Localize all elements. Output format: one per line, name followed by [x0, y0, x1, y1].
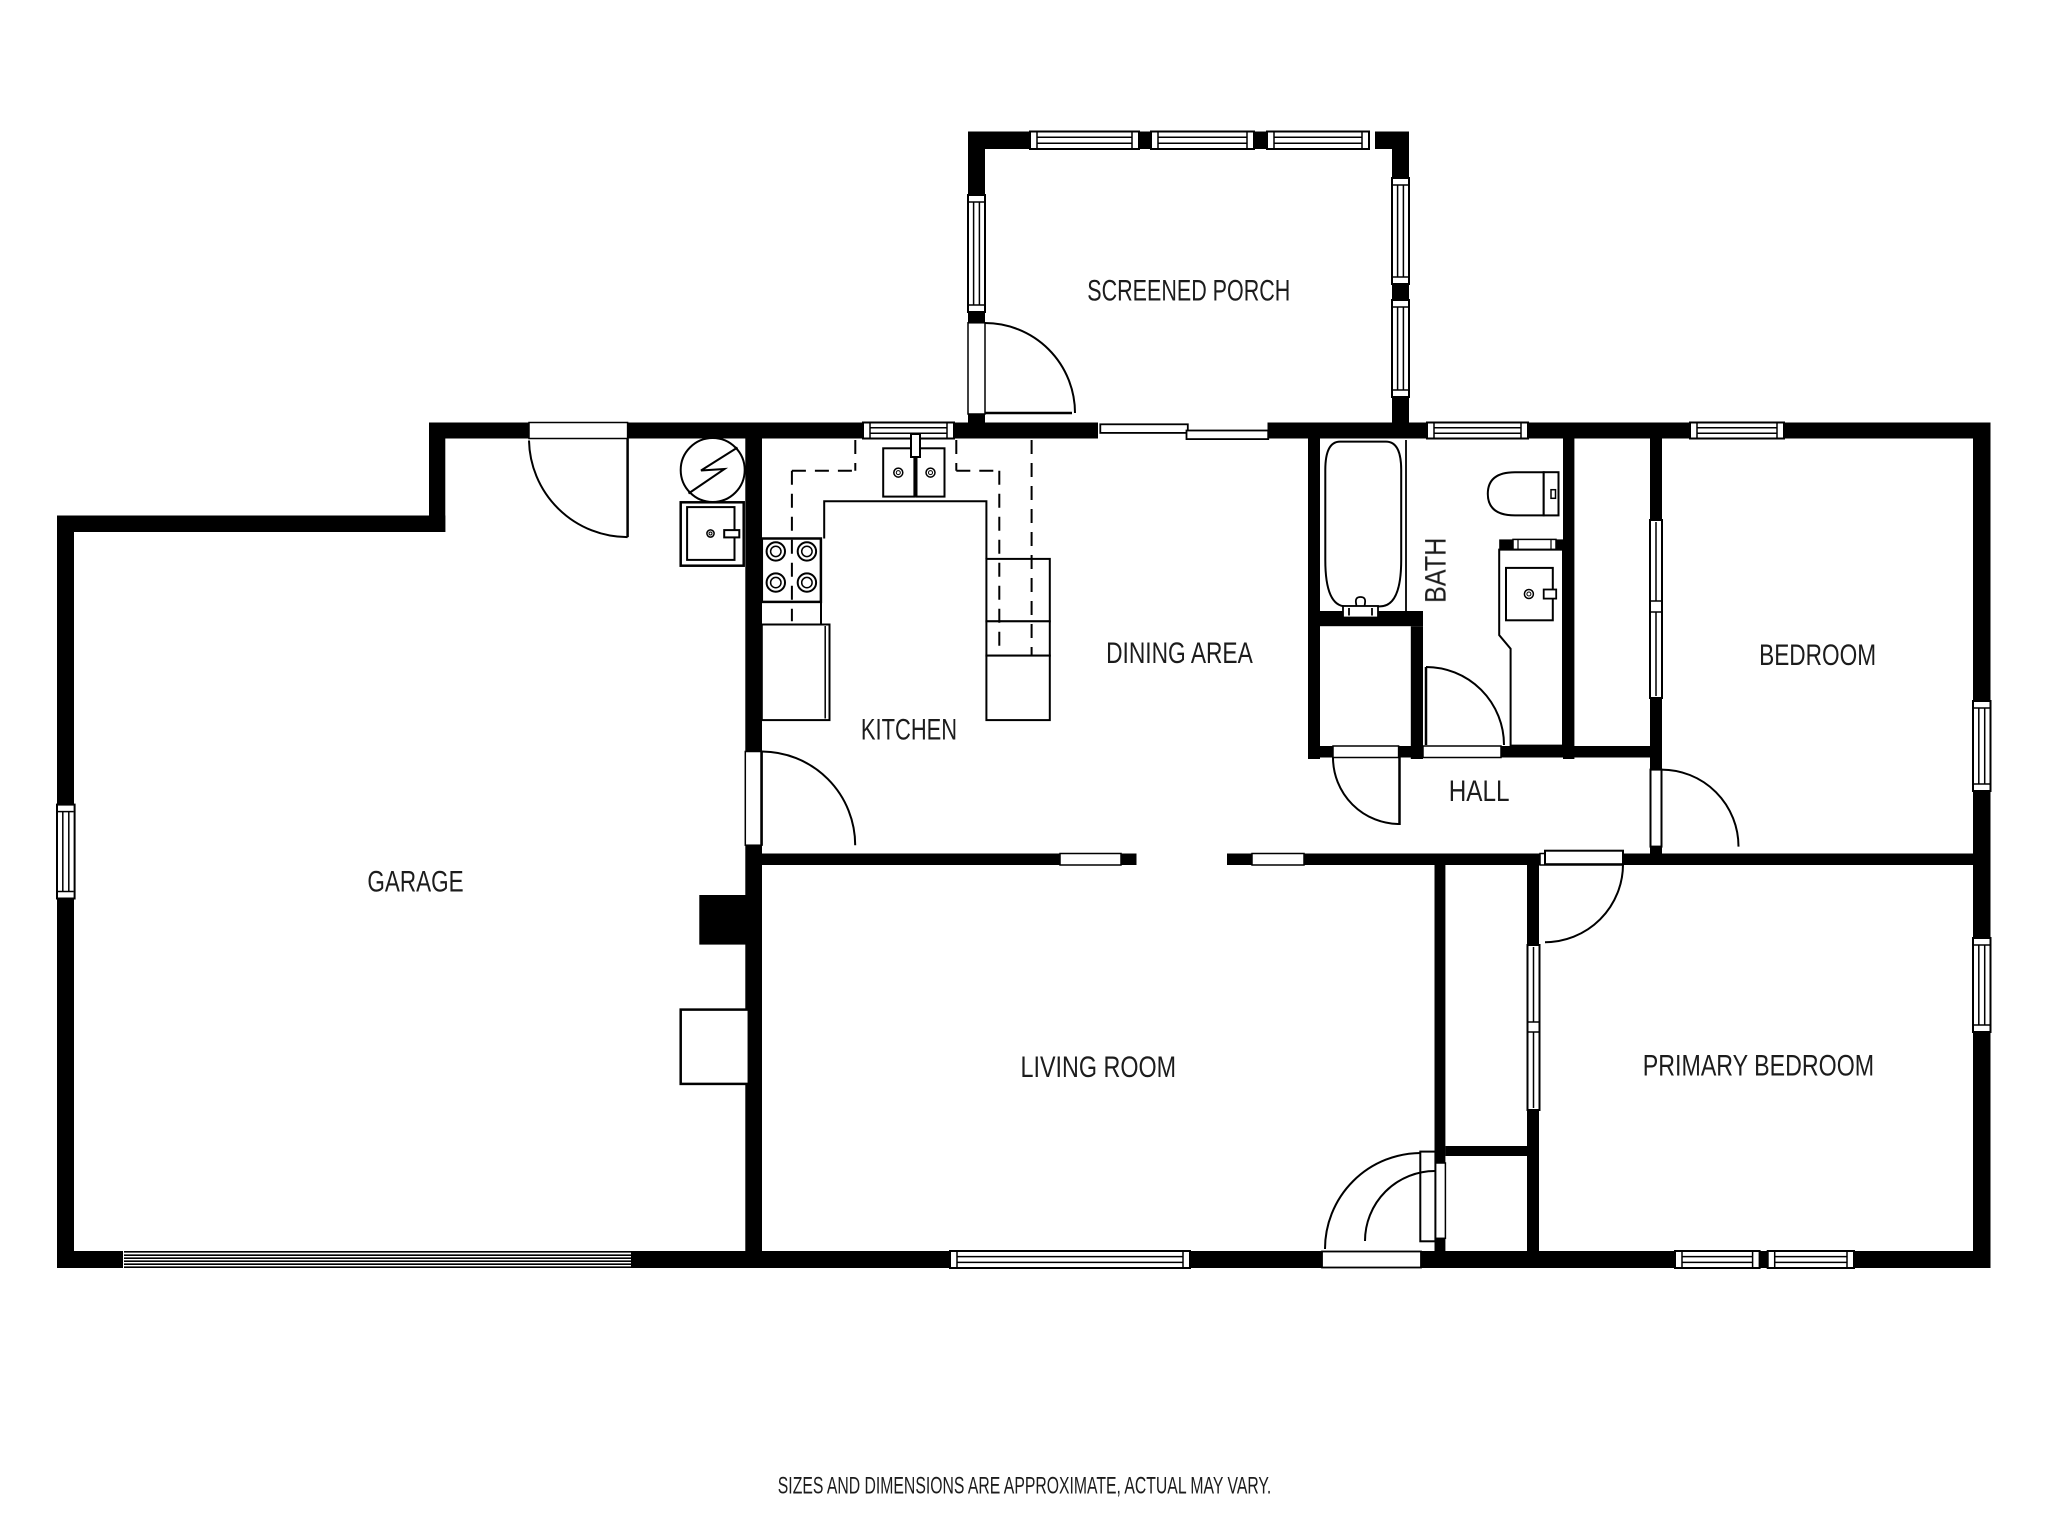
svg-text:SCREENED PORCH: SCREENED PORCH [1087, 275, 1290, 308]
svg-text:DINING AREA: DINING AREA [1106, 637, 1253, 670]
svg-text:GARAGE: GARAGE [367, 866, 463, 899]
svg-text:BEDROOM: BEDROOM [1759, 639, 1876, 672]
svg-text:KITCHEN: KITCHEN [861, 713, 957, 746]
svg-text:HALL: HALL [1449, 775, 1510, 808]
svg-text:LIVING ROOM: LIVING ROOM [1021, 1051, 1177, 1084]
svg-text:BATH: BATH [1419, 538, 1452, 603]
svg-text:SIZES AND DIMENSIONS ARE APPRO: SIZES AND DIMENSIONS ARE APPROXIMATE, AC… [778, 1472, 1272, 1499]
svg-text:PRIMARY BEDROOM: PRIMARY BEDROOM [1643, 1050, 1874, 1083]
